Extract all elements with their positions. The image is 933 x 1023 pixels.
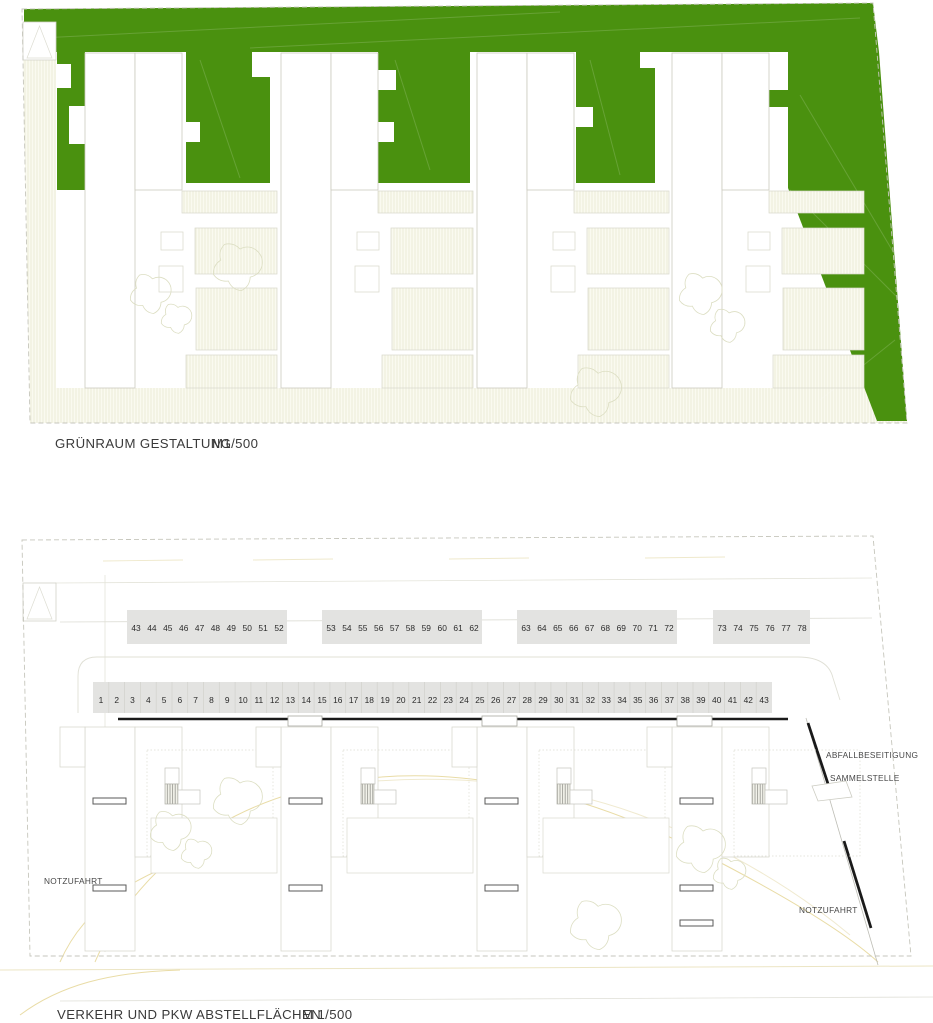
building-slab <box>85 727 135 951</box>
entrance-box <box>374 790 396 804</box>
parking-stall-number: 61 <box>453 623 463 633</box>
parking-stall-number: 51 <box>258 623 268 633</box>
parking-stall-number: 3 <box>130 695 135 705</box>
courtyard-terrace <box>773 355 864 388</box>
parking-stall-number: 39 <box>696 695 706 705</box>
connector-building <box>543 818 669 873</box>
sammelstelle-enclosure <box>812 781 852 801</box>
parking-stall-number: 57 <box>390 623 400 633</box>
parking-stall-number: 18 <box>365 695 375 705</box>
label-notzufahrt-right: NOTZUFAHRT <box>799 905 858 915</box>
parking-stall-number: 55 <box>358 623 368 633</box>
parking-stall-number: 75 <box>749 623 759 633</box>
parking-stall-number: 32 <box>586 695 596 705</box>
parking-stall-number: 17 <box>349 695 359 705</box>
building-wing <box>647 727 672 767</box>
parking-stall-number: 28 <box>523 695 533 705</box>
plans-canvas: GRÜNRAUM GESTALTUNG M1/500 <box>0 0 933 1023</box>
parking-stall-number: 52 <box>274 623 284 633</box>
stair-symbol <box>752 784 765 804</box>
entrance-box <box>178 790 200 804</box>
parking-stall-number: 5 <box>162 695 167 705</box>
courtyard-terrace <box>182 191 277 213</box>
parking-stall-number: 62 <box>469 623 479 633</box>
courtyard-terrace <box>588 288 669 350</box>
parking-stall-number: 37 <box>665 695 675 705</box>
courtyard-terrace <box>391 228 473 274</box>
parking-stall-number: 2 <box>114 695 119 705</box>
parking-stall-number: 77 <box>781 623 791 633</box>
building-slab <box>281 727 331 951</box>
courtyard-step <box>161 232 183 250</box>
gate-bar-symbol <box>289 885 322 891</box>
gruenraum-plan: GRÜNRAUM GESTALTUNG M1/500 <box>22 3 912 451</box>
plan-title-bottom: VERKEHR UND PKW ABSTELLFLÄCHEN <box>57 1007 321 1022</box>
parking-stall-number: 38 <box>681 695 691 705</box>
courtyard-terrace <box>782 228 864 274</box>
parking-stall-number: 72 <box>664 623 674 633</box>
parking-stall-number: 65 <box>553 623 563 633</box>
label-abfallbeseitigung: ABFALLBESEITIGUNG <box>826 750 918 760</box>
parking-stall-number: 25 <box>475 695 485 705</box>
stair-symbol <box>557 784 570 804</box>
courtyard-step <box>748 232 770 250</box>
parking-stall-number: 16 <box>333 695 343 705</box>
parking-stall-number: 43 <box>131 623 141 633</box>
parking-stall-number: 67 <box>585 623 595 633</box>
parking-stall-number: 9 <box>225 695 230 705</box>
connector-building <box>347 818 473 873</box>
building-slabs-bottom <box>60 727 860 951</box>
building-slab <box>477 53 527 388</box>
entrance-box <box>165 768 179 784</box>
parking-stall-number: 42 <box>744 695 754 705</box>
parking-stall-number: 30 <box>554 695 564 705</box>
parking-stall-number: 71 <box>648 623 658 633</box>
connector-building <box>151 818 277 873</box>
parking-stall-number: 43 <box>759 695 769 705</box>
entrance-box <box>765 790 787 804</box>
parking-stall-number: 26 <box>491 695 501 705</box>
site-plan-sheet: GRÜNRAUM GESTALTUNG M1/500 <box>0 0 933 1023</box>
gate-bar-symbol <box>485 798 518 804</box>
parking-stall-number: 29 <box>538 695 548 705</box>
gate-bar-symbol <box>680 920 713 926</box>
grass-tooth <box>769 90 789 107</box>
building-slab <box>672 53 722 388</box>
entrance-box <box>570 790 592 804</box>
label-notzufahrt-left: NOTZUFAHRT <box>44 876 103 886</box>
parking-stall-number: 23 <box>444 695 454 705</box>
courtyard-step <box>551 266 575 292</box>
parking-stall-number: 44 <box>147 623 157 633</box>
parking-stall-number: 31 <box>570 695 580 705</box>
road-edge-line <box>55 578 872 583</box>
gate-bar-symbol <box>680 798 713 804</box>
parking-block-4 <box>713 610 810 644</box>
parking-stall-number: 46 <box>179 623 189 633</box>
plan-scale-bottom: M 1/500 <box>302 1007 352 1022</box>
parking-stall-number: 33 <box>602 695 612 705</box>
parking-stall-number: 22 <box>428 695 438 705</box>
gate-bar-symbol <box>485 885 518 891</box>
tree-canopy <box>571 901 622 950</box>
parking-stall-number: 63 <box>521 623 531 633</box>
courtyard-step <box>357 232 379 250</box>
building-slab <box>135 53 182 190</box>
parking-stall-number: 15 <box>317 695 327 705</box>
parking-stall-number: 73 <box>717 623 727 633</box>
building-wing <box>60 727 85 767</box>
stair-symbol <box>165 784 178 804</box>
gate-bar-symbol <box>680 885 713 891</box>
parking-stall-number: 69 <box>617 623 627 633</box>
parking-stall-number: 21 <box>412 695 422 705</box>
parking-stall-number: 50 <box>243 623 253 633</box>
parking-stall-number: 66 <box>569 623 579 633</box>
stair-symbol <box>361 784 374 804</box>
plan-scale-top: M1/500 <box>212 436 258 451</box>
parking-stall-number: 40 <box>712 695 722 705</box>
building-slab <box>722 53 769 190</box>
parking-stall-number: 70 <box>633 623 643 633</box>
building-slab <box>281 53 331 388</box>
parking-stall-number: 76 <box>765 623 775 633</box>
courtyard-terrace <box>578 355 669 388</box>
courtyard-terrace <box>783 288 864 350</box>
parking-stall-number: 60 <box>438 623 448 633</box>
building-slab <box>331 53 378 190</box>
gate-bar-symbol <box>93 798 126 804</box>
entrance-box <box>361 768 375 784</box>
parking-stall-number: 14 <box>302 695 312 705</box>
courtyard-terrace <box>378 191 473 213</box>
courtyard-terrace <box>574 191 669 213</box>
parking-stall-number: 58 <box>406 623 416 633</box>
courtyard-step <box>553 232 575 250</box>
parking-stall-number: 47 <box>195 623 205 633</box>
entrance-box <box>752 768 766 784</box>
parking-stall-number: 41 <box>728 695 738 705</box>
courtyard-step <box>746 266 770 292</box>
parking-stall-number: 24 <box>459 695 469 705</box>
parking-stall-number: 10 <box>238 695 248 705</box>
parking-stall-number: 64 <box>537 623 547 633</box>
tree-canopy <box>213 778 262 825</box>
edge-bays <box>288 716 712 726</box>
parking-stall-number: 35 <box>633 695 643 705</box>
parking-stall-number: 68 <box>601 623 611 633</box>
parking-stall-number: 49 <box>227 623 237 633</box>
plan-title-top: GRÜNRAUM GESTALTUNG <box>55 436 231 451</box>
parking-stall-number: 8 <box>209 695 214 705</box>
building-slab <box>85 53 135 388</box>
grass-band <box>24 3 879 52</box>
building-slab <box>672 727 722 951</box>
courtyard-terrace <box>196 288 277 350</box>
parking-stall-number: 45 <box>163 623 173 633</box>
building-slab <box>477 727 527 951</box>
verkehr-plan: 4344454647484950515253545556575859606162… <box>0 536 933 1022</box>
faint-road-marks <box>103 557 725 561</box>
courtyard-terrace <box>587 228 669 274</box>
parking-stall-number: 54 <box>342 623 352 633</box>
courtyard-terrace <box>769 191 864 213</box>
parking-stall-number: 56 <box>374 623 384 633</box>
gate-bar-symbol <box>289 798 322 804</box>
parking-stall-number: 27 <box>507 695 517 705</box>
parking-stall-number: 59 <box>422 623 432 633</box>
parking-stall-number: 19 <box>380 695 390 705</box>
parking-stall-number: 53 <box>326 623 336 633</box>
courtyard-step <box>355 266 379 292</box>
parking-stall-number: 6 <box>177 695 182 705</box>
courtyard-terrace <box>195 228 277 274</box>
parking-stall-number: 12 <box>270 695 280 705</box>
courtyard-terrace <box>392 288 473 350</box>
courtyard-terrace <box>186 355 277 388</box>
entrance-box <box>557 768 571 784</box>
parking-stall-number: 48 <box>211 623 221 633</box>
parking-stall-number: 13 <box>286 695 296 705</box>
parking-back-numbers: 4344454647484950515253545556575859606162… <box>131 623 807 633</box>
parking-stall-number: 34 <box>617 695 627 705</box>
parking-stall-number: 74 <box>733 623 743 633</box>
parking-stall-number: 36 <box>649 695 659 705</box>
parking-stall-number: 11 <box>254 695 263 705</box>
parking-stall-number: 1 <box>99 695 104 705</box>
label-sammelstelle: SAMMELSTELLE <box>830 773 900 783</box>
building-wing <box>452 727 477 767</box>
building-slab <box>527 53 574 190</box>
courtyard-terrace <box>382 355 473 388</box>
parking-stall-number: 78 <box>797 623 807 633</box>
parking-stall-number: 7 <box>193 695 198 705</box>
parking-stall-number: 4 <box>146 695 151 705</box>
building-wing <box>256 727 281 767</box>
parking-stall-number: 20 <box>396 695 406 705</box>
